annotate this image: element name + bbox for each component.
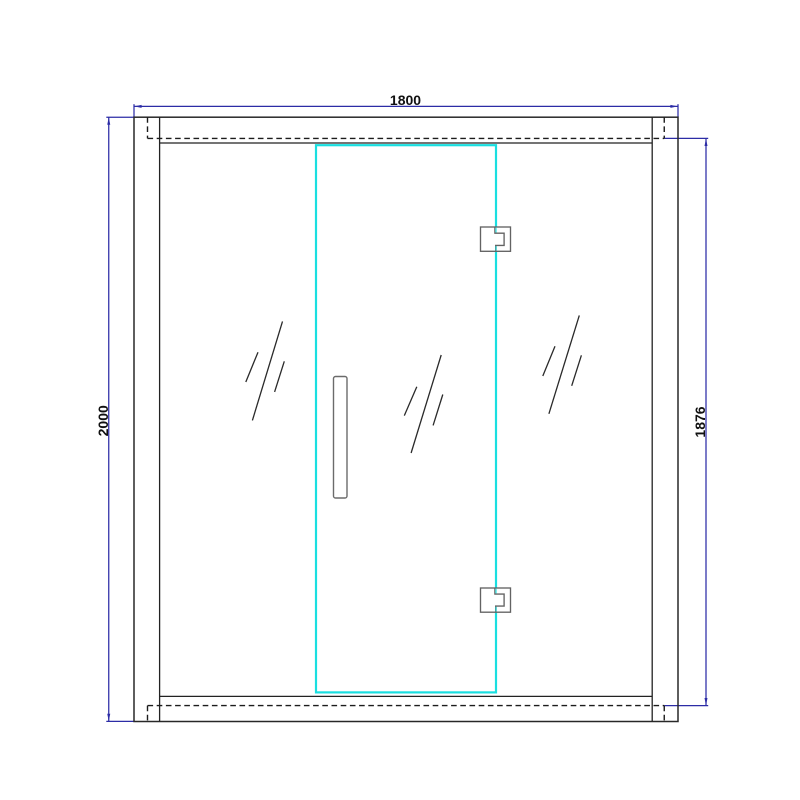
svg-text:1876: 1876 bbox=[692, 406, 708, 437]
svg-text:2000: 2000 bbox=[95, 405, 111, 436]
svg-text:1800: 1800 bbox=[390, 92, 421, 108]
